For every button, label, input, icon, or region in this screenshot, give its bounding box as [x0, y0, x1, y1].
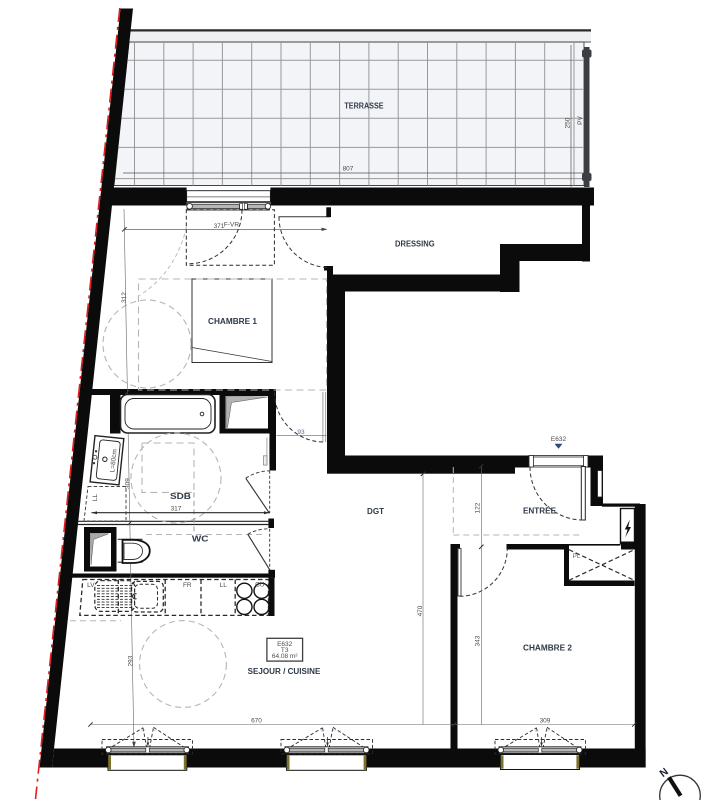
svg-text:CU: CU [255, 582, 265, 589]
svg-text:90: 90 [332, 728, 336, 732]
svg-text:90: 90 [535, 729, 539, 733]
svg-text:309: 309 [124, 478, 131, 489]
svg-text:343: 343 [475, 635, 482, 646]
svg-text:90: 90 [321, 729, 325, 733]
svg-text:309: 309 [540, 717, 551, 724]
svg-text:CHAMBRE 2: CHAMBRE 2 [523, 642, 572, 652]
svg-text:SEJOUR / CUISINE: SEJOUR / CUISINE [248, 666, 321, 676]
svg-text:317: 317 [171, 506, 182, 513]
svg-text:F-VR: F-VR [224, 221, 239, 228]
svg-text:90: 90 [152, 728, 156, 732]
svg-text:90: 90 [141, 729, 145, 733]
svg-text:LV: LV [87, 582, 95, 589]
svg-text:807: 807 [343, 166, 354, 173]
svg-text:64.08 m²: 64.08 m² [272, 653, 298, 660]
svg-text:PV: PV [577, 116, 584, 125]
svg-text:293: 293 [128, 655, 135, 666]
svg-text:93: 93 [297, 429, 305, 436]
svg-text:670: 670 [251, 718, 262, 725]
svg-text:TERRASSE: TERRASSE [344, 101, 383, 111]
svg-text:122: 122 [475, 502, 482, 513]
svg-text:250: 250 [565, 117, 572, 128]
svg-text:LL: LL [92, 494, 99, 502]
svg-text:FR: FR [183, 582, 192, 589]
svg-text:SDB: SDB [170, 491, 191, 501]
svg-text:E632: E632 [551, 436, 567, 443]
svg-text:470: 470 [417, 605, 424, 616]
svg-text:90: 90 [546, 728, 550, 732]
svg-text:LL: LL [220, 582, 228, 589]
svg-text:312: 312 [121, 292, 128, 303]
svg-text:PL: PL [573, 553, 581, 560]
svg-text:DRESSING: DRESSING [395, 239, 435, 249]
svg-text:CHAMBRE 1: CHAMBRE 1 [208, 316, 257, 326]
svg-text:DGT: DGT [367, 506, 385, 516]
svg-text:ENTRÉE: ENTRÉE [523, 506, 556, 516]
